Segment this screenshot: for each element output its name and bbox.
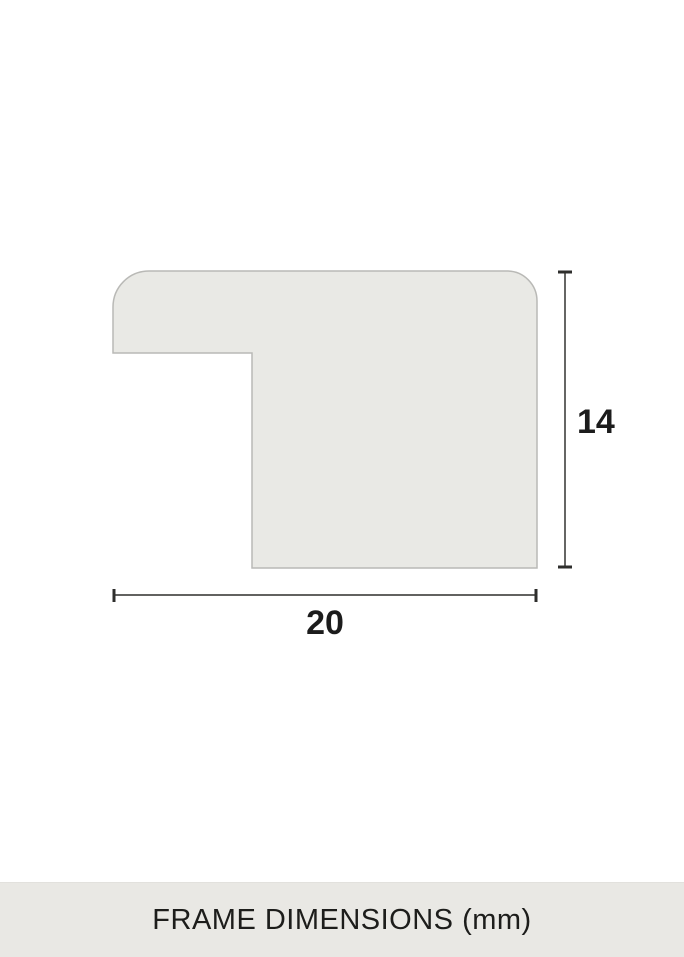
width-dimension: 20 [114,589,536,642]
diagram-canvas: 14 20 [0,0,684,882]
frame-profile-shape [113,271,537,568]
frame-profile-diagram: 14 20 [0,0,684,882]
height-dimension-label: 14 [577,403,615,441]
footer-title: FRAME DIMENSIONS (mm) [152,904,531,937]
footer-bar: FRAME DIMENSIONS (mm) [0,882,684,957]
width-dimension-label: 20 [306,604,344,642]
frame-dimension-page: 14 20 FRAME DIMENSIONS (mm) [0,0,684,957]
height-dimension: 14 [558,272,615,567]
